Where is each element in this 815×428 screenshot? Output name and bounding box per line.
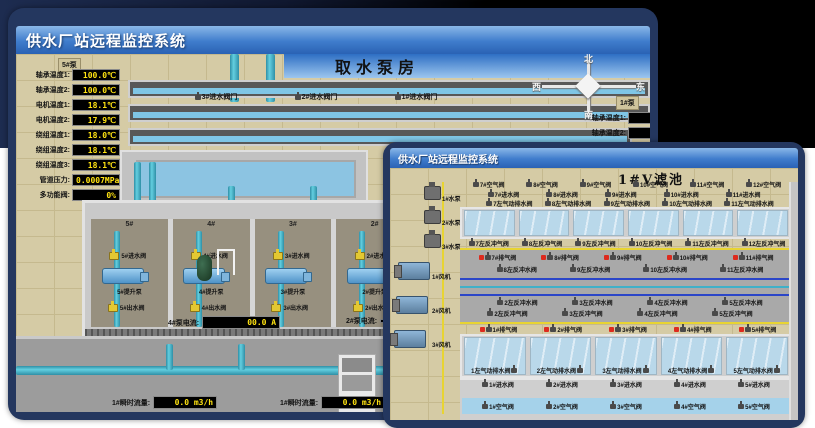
readout-led-value (628, 127, 650, 139)
air-valve-icon (738, 404, 744, 409)
inlet-valve[interactable]: 7#进水阀 (488, 190, 520, 199)
exhaust-valve[interactable]: 8#排气阀 (541, 253, 579, 262)
backwash-pump-icon[interactable] (424, 210, 441, 224)
inlet-valve-icon (605, 192, 611, 197)
exhaust-alarm-icon (609, 327, 614, 332)
intake-valve[interactable]: 2#进水阀门 (295, 92, 338, 102)
backwash-water-valve-icon (720, 267, 726, 272)
readout-row: 轴承温度2: (576, 127, 650, 139)
drain-valve[interactable]: 4左气动排水阀 (668, 366, 715, 375)
air-valve[interactable]: 7#空气阀 (473, 180, 505, 189)
exhaust-valve-icon (547, 255, 553, 260)
exhaust-valve-icon (610, 255, 616, 260)
backwash-water-valve[interactable]: 5左反冲水阀 (722, 298, 762, 307)
exhaust-alarm-icon (667, 255, 672, 260)
exhaust-valve[interactable]: 2#排气阀 (544, 325, 582, 334)
readout-row: 电机温度1: 18.1℃ (20, 99, 124, 111)
bay-number: 5# (125, 221, 133, 228)
bottom-inlet-valve-row: 1#进水阀2#进水阀3#进水阀4#进水阀5#进水阀 (466, 380, 786, 389)
forebay-basin (120, 150, 368, 206)
outlet-valve-label: 5#出水阀 (120, 303, 145, 312)
filter-scene: 1#V滤池 1#水泵2#水泵3#水泵 1#风机2#风机3#风机 7#空气阀8#空… (390, 168, 798, 420)
backwash-air-valve[interactable]: 11左反冲气阀 (685, 239, 728, 248)
readout-label: 轴承温度1: (20, 70, 70, 80)
backwash-air-valve-label: 9左反冲气阀 (582, 239, 615, 248)
inlet-valve-icon (546, 192, 552, 197)
backwash-air-valve-icon (469, 241, 475, 246)
backwash-water-valve-label: 11左反冲水阀 (727, 265, 763, 274)
pipe-gallery: 7#排气阀8#排气阀9#排气阀10#排气阀11#排气阀 8左反冲水阀9左反冲水阀… (460, 248, 792, 324)
bottom-exhaust-valve-row: 1#排气阀2#排气阀3#排气阀4#排气阀5#排气阀 (466, 325, 790, 334)
air-valve-icon (526, 182, 532, 187)
clean-water-pipe (460, 286, 792, 288)
drain-valve-label: 3左气动排水阀 (602, 366, 641, 375)
pump-bay[interactable]: 3# 3#进水阀 3#提升泵 3#出水阀 (250, 219, 332, 327)
outlet-valve-icon (271, 304, 281, 312)
readout-row: 绕组温度3: 18.1℃ (20, 159, 124, 171)
readout-label: 电机温度1: (20, 100, 70, 110)
backwash-air-valve-icon (685, 241, 691, 246)
inlet-valve[interactable]: 5#进水阀 (738, 380, 770, 389)
outlet-valve-icon (190, 304, 200, 312)
backwash-air-valve-icon (562, 311, 568, 316)
exhaust-valve-label: 10#排气阀 (680, 253, 708, 262)
air-valve-label: 10#空气阀 (640, 180, 668, 189)
current-label: 4#泵电流: (168, 318, 199, 328)
inlet-valve[interactable]: 4#进水阀 (674, 380, 706, 389)
filter-cell (683, 210, 734, 236)
back-window-titlebar[interactable]: 供水厂站远程监控系统 (16, 26, 650, 54)
drain-valve[interactable]: 2左气动排水阀 (537, 366, 584, 375)
flow-led: 0.0 m3/h (321, 396, 385, 409)
exhaust-valve[interactable]: 10#排气阀 (667, 253, 708, 262)
intake-valve[interactable]: 1#进水阀门 (395, 92, 438, 102)
drain-valve-icon (643, 368, 649, 373)
air-valve-label: 12#空气阀 (753, 180, 781, 189)
exhaust-valve[interactable]: 5#排气阀 (739, 325, 777, 334)
inlet-valve-label: 2#进水阀 (553, 380, 578, 389)
drain-valve-icon (708, 368, 714, 373)
readout-led-value: 18.1℃ (72, 159, 120, 171)
inlet-valve[interactable]: 1#进水阀 (482, 380, 514, 389)
readout-label: 电机温度2: (20, 115, 70, 125)
inlet-valve-icon (674, 382, 680, 387)
drain-valve-label: 5左气动排水阀 (734, 366, 773, 375)
backwash-air-valve-icon (575, 241, 581, 246)
exhaust-alarm-icon (544, 327, 549, 332)
air-valve[interactable]: 10#空气阀 (633, 180, 668, 189)
inlet-valve[interactable]: 5#进水阀 (109, 251, 146, 260)
backwash-air-valve[interactable]: 7左反冲气阀 (469, 239, 509, 248)
lift-pump-label-wrap: 5#提升泵 (117, 287, 142, 296)
inlet-valve-icon (482, 382, 488, 387)
drain-valve-icon (604, 201, 610, 206)
window-v-filter[interactable]: 供水厂站远程监控系统 1#V滤池 1#水泵2#水泵3#水泵 1#风机2#风机3#… (383, 142, 805, 428)
inlet-valve[interactable]: 2#进水阀 (546, 380, 578, 389)
filter-cell (573, 210, 624, 236)
backwash-water-valve-label: 4左反冲水阀 (654, 298, 687, 307)
compass-west: 西 (532, 80, 541, 93)
drain-valve-icon (545, 201, 551, 206)
inlet-valve-icon (488, 192, 494, 197)
exhaust-alarm-icon (739, 327, 744, 332)
drain-valve[interactable]: 5左气动排水阀 (734, 366, 781, 375)
readout-label: 管道压力: (20, 175, 70, 185)
backwash-air-valve-label: 2左反冲气阀 (494, 309, 527, 318)
air-valve-icon (690, 182, 696, 187)
readout-label: 多功能阀: (20, 190, 70, 200)
air-valve[interactable]: 3#空气阀 (610, 402, 642, 411)
backwash-air-valve-label: 5左反冲气阀 (719, 309, 752, 318)
wall-frame (217, 249, 235, 275)
backwash-air-valve-label: 12左反冲气阀 (749, 239, 786, 248)
backwash-air-valve[interactable]: 12左反冲气阀 (742, 239, 786, 248)
drain-valve-icon (577, 368, 583, 373)
flow-led: 0.0 m3/h (153, 396, 217, 409)
backwash-air-valve-icon (522, 241, 528, 246)
intake-valve-row: 3#进水阀门 2#进水阀门 1#进水阀门 (166, 92, 466, 102)
air-valve-icon (633, 182, 639, 187)
top-backwash-water-row: 8左反冲水阀9左反冲水阀10左反冲水阀11左反冲水阀 (480, 265, 780, 274)
exhaust-valve-label: 7#排气阀 (492, 253, 517, 262)
drain-valve-label: 1左气动排水阀 (471, 366, 510, 375)
exhaust-valve-label: 5#排气阀 (752, 325, 777, 334)
inlet-valve-label: 1#进水阀 (489, 380, 514, 389)
air-valve-icon (482, 404, 488, 409)
backwash-air-valve[interactable]: 8左反冲气阀 (522, 239, 562, 248)
lift-pump-icon[interactable] (265, 268, 307, 284)
drain-valve[interactable]: 3左气动排水阀 (602, 366, 649, 375)
readout-led-value: 17.9℃ (72, 114, 120, 126)
front-window-title: 供水厂站远程监控系统 (398, 151, 498, 166)
right-wall (789, 182, 798, 420)
readout-led-value: 0.0007MPa (72, 174, 120, 186)
exhaust-valve-label: 11#排气阀 (746, 253, 774, 262)
air-valve-icon (473, 182, 479, 187)
filter-cell (628, 210, 679, 236)
inlet-valve[interactable]: 3#进水阀 (610, 380, 642, 389)
inlet-valve[interactable]: 10#进水阀 (664, 190, 699, 199)
drain-valve[interactable]: 1左气动排水阀 (471, 366, 518, 375)
air-valve-label: 7#空气阀 (480, 180, 505, 189)
pump-label: 3#水泵 (442, 245, 461, 251)
drain-valve-label: 2左气动排水阀 (537, 366, 576, 375)
air-valve[interactable]: 4#空气阀 (674, 402, 706, 411)
bay-number: 2# (371, 221, 379, 228)
intake-valve-icon (195, 95, 201, 100)
backwash-air-valve[interactable]: 2左反冲气阀 (487, 309, 527, 318)
readout-led-value (628, 112, 650, 124)
exhaust-valve-label: 4#排气阀 (687, 325, 712, 334)
air-valve[interactable]: 2#空气阀 (546, 402, 578, 411)
exhaust-valve[interactable]: 11#排气阀 (733, 253, 774, 262)
air-valve-label: 9#空气阀 (587, 180, 612, 189)
inlet-valve-icon (273, 252, 283, 260)
backwash-pump-icon[interactable] (424, 234, 441, 248)
exhaust-valve-label: 1#排气阀 (493, 325, 518, 334)
intake-valve-label: 3#进水阀门 (202, 92, 238, 102)
readout-row: 绕组温度1: 18.0℃ (20, 129, 124, 141)
current-led: 00.0 A (202, 316, 280, 329)
exhaust-valve-icon (615, 327, 621, 332)
lift-pump-label: 3#提升泵 (281, 287, 306, 296)
air-valve[interactable]: 12#空气阀 (746, 180, 781, 189)
air-valve-label: 8#空气阀 (533, 180, 558, 189)
exhaust-valve[interactable]: 3#排气阀 (609, 325, 647, 334)
backwash-water-valve[interactable]: 8左反冲水阀 (497, 265, 537, 274)
compass-star (575, 73, 600, 98)
drain-valve-icon (511, 368, 517, 373)
current-label: 2#泵电流: (346, 316, 377, 326)
air-valve-label: 5#空气阀 (745, 402, 770, 411)
backwash-air-valve-icon (637, 311, 643, 316)
exhaust-valve-icon (680, 327, 686, 332)
outlet-valve-icon (108, 304, 118, 312)
backwash-water-valve-icon (497, 300, 503, 305)
inlet-valve-icon (546, 382, 552, 387)
inlet-valve[interactable]: 9#进水阀 (605, 190, 637, 199)
backwash-water-valve-icon (722, 300, 728, 305)
top-air-valve-row: 7#空气阀8#空气阀9#空气阀10#空气阀11#空气阀12#空气阀 (462, 180, 792, 189)
readout-label: 绕组温度1: (20, 130, 70, 140)
backwash-air-valve[interactable]: 10左反冲气阀 (629, 239, 673, 248)
air-valve-icon (580, 182, 586, 187)
filter-cell (519, 210, 570, 236)
lift-pump-label: 5#提升泵 (117, 287, 142, 296)
exhaust-valve[interactable]: 1#排气阀 (480, 325, 518, 334)
temperature-readout-panel: 轴承温度1: 100.0℃ 轴承温度2: 100.0℃ 电机温度1: 18.1℃… (20, 69, 124, 204)
intake-valve-label: 2#进水阀门 (302, 92, 338, 102)
pump-bay[interactable]: 5# 5#进水阀 5#提升泵 5#出水阀 (91, 219, 168, 327)
exhaust-valve[interactable]: 9#排气阀 (604, 253, 642, 262)
backwash-water-valve-label: 10左反冲水阀 (650, 265, 687, 274)
front-window-titlebar[interactable]: 供水厂站远程监控系统 (390, 148, 798, 168)
air-valve-icon (746, 182, 752, 187)
backwash-water-valve-icon (497, 267, 503, 272)
air-valve-icon (674, 404, 680, 409)
inlet-valve-label: 8#进水阀 (553, 190, 578, 199)
readout-row: 轴承温度1: 100.0℃ (20, 69, 124, 81)
inlet-valve-label: 5#进水阀 (121, 251, 146, 260)
top-filter-pools (460, 207, 792, 239)
exhaust-valve-label: 2#排气阀 (557, 325, 582, 334)
backwash-air-valve[interactable]: 5左反冲气阀 (712, 309, 752, 318)
blower-label: 3#风机 (432, 343, 451, 349)
air-valve-label: 3#空气阀 (617, 402, 642, 411)
backwash-air-valve-icon (742, 241, 748, 246)
pump-label: 2#水泵 (442, 221, 461, 227)
bay-number: 3# (289, 221, 297, 228)
air-valve-icon (546, 404, 552, 409)
blower-label: 1#风机 (432, 275, 451, 281)
readout-row: 轴承温度2: 100.0℃ (20, 84, 124, 96)
flow-label: 1#瞬时流量: (280, 398, 318, 408)
backwash-water-valve[interactable]: 11左反冲水阀 (720, 265, 763, 274)
dosing-tank (197, 255, 212, 281)
outlet-valve[interactable]: 3#出水阀 (271, 303, 308, 312)
air-valve-label: 2#空气阀 (553, 402, 578, 411)
top-inlet-valve-row: 7#进水阀8#进水阀9#进水阀10#进水阀11#进水阀 (474, 190, 774, 199)
right-pump-panel-title: 1#泵 (616, 96, 639, 110)
inlet-valve[interactable]: 11#进水阀 (726, 190, 761, 199)
exhaust-alarm-icon (479, 255, 484, 260)
inlet-valve[interactable]: 3#进水阀 (273, 251, 310, 260)
backwash-air-valve-label: 4左反冲气阀 (644, 309, 677, 318)
intake-valve-icon (395, 95, 401, 100)
backwash-water-valve-label: 8左反冲水阀 (504, 265, 537, 274)
outlet-valve-icon (353, 304, 363, 312)
drain-valve-icon (662, 201, 668, 206)
air-valve-label: 4#空气阀 (681, 402, 706, 411)
backwash-water-valve-label: 9左反冲水阀 (577, 265, 610, 274)
manifold-drop-pipe (238, 344, 245, 370)
pump-label: 1#水泵 (442, 197, 461, 203)
inlet-valve-label: 7#进水阀 (495, 190, 520, 199)
backwash-air-valve-label: 11左反冲气阀 (692, 239, 728, 248)
backwash-water-valve-label: 3左反冲水阀 (579, 298, 612, 307)
air-valve-label: 1#空气阀 (489, 402, 514, 411)
backwash-water-valve[interactable]: 10左反冲水阀 (643, 265, 687, 274)
exhaust-valve-icon (550, 327, 556, 332)
drain-valve-icon (486, 201, 492, 206)
backwash-water-valve-icon (643, 267, 649, 272)
outlet-valve-label: 4#出水阀 (202, 303, 227, 312)
inlet-valve-icon (355, 252, 365, 260)
backwash-air-valve[interactable]: 9左反冲气阀 (575, 239, 615, 248)
backwash-water-valve[interactable]: 2左反冲水阀 (497, 298, 537, 307)
exhaust-valve-icon (486, 327, 492, 332)
right-readout-panel: 轴承温度1: 轴承温度2: (576, 112, 650, 142)
readout-led-value: 18.1℃ (72, 144, 120, 156)
flow-readout-left: 1#瞬时流量: 0.0 m3/h (112, 396, 217, 409)
pump-hall-floor: 5# 5#进水阀 5#提升泵 5#出水阀 4# (91, 219, 413, 327)
inlet-valve-icon (738, 382, 744, 387)
readout-row: 管道压力: 0.0007MPa (20, 174, 124, 186)
exhaust-valve-label: 3#排气阀 (622, 325, 647, 334)
manifold-drop-pipe (166, 344, 173, 370)
outlet-valve[interactable]: 5#出水阀 (108, 303, 145, 312)
filter-cell (464, 210, 515, 236)
lift-pump-label-wrap: 3#提升泵 (281, 287, 306, 296)
inlet-valve-icon (109, 252, 119, 260)
lift-pump-label-wrap: 4#提升泵 (199, 287, 224, 296)
backwash-water-valve-label: 2左反冲水阀 (504, 298, 537, 307)
intake-valve-icon (295, 95, 301, 100)
inlet-valve-label: 9#进水阀 (612, 190, 637, 199)
backwash-pump-icon[interactable] (424, 186, 441, 200)
inlet-valve-label: 3#进水阀 (617, 380, 642, 389)
readout-row: 电机温度2: 17.9℃ (20, 114, 124, 126)
outlet-valve[interactable]: 4#出水阀 (190, 303, 227, 312)
back-window-title: 供水厂站远程监控系统 (26, 30, 186, 51)
backwash-water-valve-icon (572, 300, 578, 305)
exhaust-valve-icon (485, 255, 491, 260)
scene-title-intake: 取水泵房 (312, 54, 442, 78)
blower-icon[interactable] (398, 262, 430, 280)
inlet-valve-icon (610, 382, 616, 387)
inlet-valve-label: 10#进水阀 (671, 190, 699, 199)
backwash-water-valve[interactable]: 9左反冲水阀 (570, 265, 610, 274)
backwash-air-valve-label: 10左反冲气阀 (636, 239, 673, 248)
exhaust-valve-label: 9#排气阀 (617, 253, 642, 262)
backwash-air-valve-label: 8左反冲气阀 (529, 239, 562, 248)
exhaust-valve-icon (673, 255, 679, 260)
exhaust-alarm-icon (604, 255, 609, 260)
air-valve[interactable]: 1#空气阀 (482, 402, 514, 411)
top-backwash-air-row: 7左反冲气阀8左反冲气阀9左反冲气阀10左反冲气阀11左反冲气阀12左反冲气阀 (462, 239, 792, 248)
outlet-valve-label: 3#出水阀 (283, 303, 308, 312)
backwash-water-valve[interactable]: 3左反冲水阀 (572, 298, 612, 307)
exhaust-valve[interactable]: 4#排气阀 (674, 325, 712, 334)
readout-label: 绕组温度3: (20, 160, 70, 170)
exhaust-valve[interactable]: 7#排气阀 (479, 253, 517, 262)
readout-led-value: 18.1℃ (72, 99, 120, 111)
backwash-water-pipe (460, 294, 792, 296)
compass: 北 西 南 东 (534, 54, 644, 120)
backwash-air-valve-icon (487, 311, 493, 316)
lift-pump-icon[interactable] (102, 268, 144, 284)
exhaust-alarm-icon (674, 327, 679, 332)
drain-valve-icon (774, 368, 780, 373)
air-valve[interactable]: 9#空气阀 (580, 180, 612, 189)
readout-label: 绕组温度2: (20, 145, 70, 155)
bottom-backwash-air-row: 2左反冲气阀3左反冲气阀4左反冲气阀5左反冲气阀 (470, 309, 770, 318)
readout-row: 绕组温度2: 18.1℃ (20, 144, 124, 156)
flow-label: 1#瞬时流量: (112, 398, 150, 408)
bottom-drain-valve-row: 1左气动排水阀2左气动排水阀3左气动排水阀4左气动排水阀5左气动排水阀 (462, 366, 790, 375)
lift-pump-label: 4#提升泵 (199, 287, 224, 296)
air-valve[interactable]: 11#空气阀 (690, 180, 725, 189)
backwash-air-valve[interactable]: 4左反冲气阀 (637, 309, 677, 318)
exhaust-alarm-icon (541, 255, 546, 260)
blower-label: 2#风机 (432, 309, 451, 315)
inlet-valve-icon (664, 192, 670, 197)
readout-led-value: 100.0℃ (72, 84, 120, 96)
exhaust-valve-label: 8#排气阀 (554, 253, 579, 262)
flow-readout-right: 1#瞬时流量: 0.0 m3/h (280, 396, 385, 409)
readout-row: 轴承温度1: (576, 112, 650, 124)
air-valve-icon (610, 404, 616, 409)
readout-label: 轴承温度2: (20, 85, 70, 95)
bottom-backwash-water-row: 2左反冲水阀3左反冲水阀4左反冲水阀5左反冲水阀 (480, 298, 780, 307)
exhaust-valve-icon (739, 255, 745, 260)
bottom-air-valve-row: 1#空气阀2#空气阀3#空气阀4#空气阀5#空气阀 (466, 402, 786, 411)
inlet-valve-label: 4#进水阀 (681, 380, 706, 389)
backwash-water-valve[interactable]: 4左反冲水阀 (647, 298, 687, 307)
drain-valve-icon (724, 201, 730, 206)
air-valve[interactable]: 8#空气阀 (526, 180, 558, 189)
readout-label: 轴承温度1: (576, 113, 626, 123)
backwash-water-valve-label: 5左反冲水阀 (729, 298, 762, 307)
intake-valve[interactable]: 3#进水阀门 (195, 92, 238, 102)
inlet-valve-label: 3#进水阀 (285, 251, 310, 260)
backwash-air-valve-label: 7左反冲气阀 (476, 239, 509, 248)
inlet-valve-icon (726, 192, 732, 197)
backwash-air-valve-label: 3左反冲气阀 (569, 309, 602, 318)
blower-icon[interactable] (394, 330, 426, 348)
backwash-air-valve-icon (712, 311, 718, 316)
readout-led-value: 18.0℃ (72, 129, 120, 141)
air-valve[interactable]: 5#空气阀 (738, 402, 770, 411)
compass-east: 东 (636, 80, 645, 93)
backwash-air-valve-icon (629, 241, 635, 246)
inlet-valve[interactable]: 8#进水阀 (546, 190, 578, 199)
backwash-air-valve[interactable]: 3左反冲气阀 (562, 309, 602, 318)
blower-icon[interactable] (396, 296, 428, 314)
bay-number: 4# (207, 221, 215, 228)
exhaust-alarm-icon (733, 255, 738, 260)
current-readout-4: 4#泵电流: 00.0 A (168, 316, 280, 329)
